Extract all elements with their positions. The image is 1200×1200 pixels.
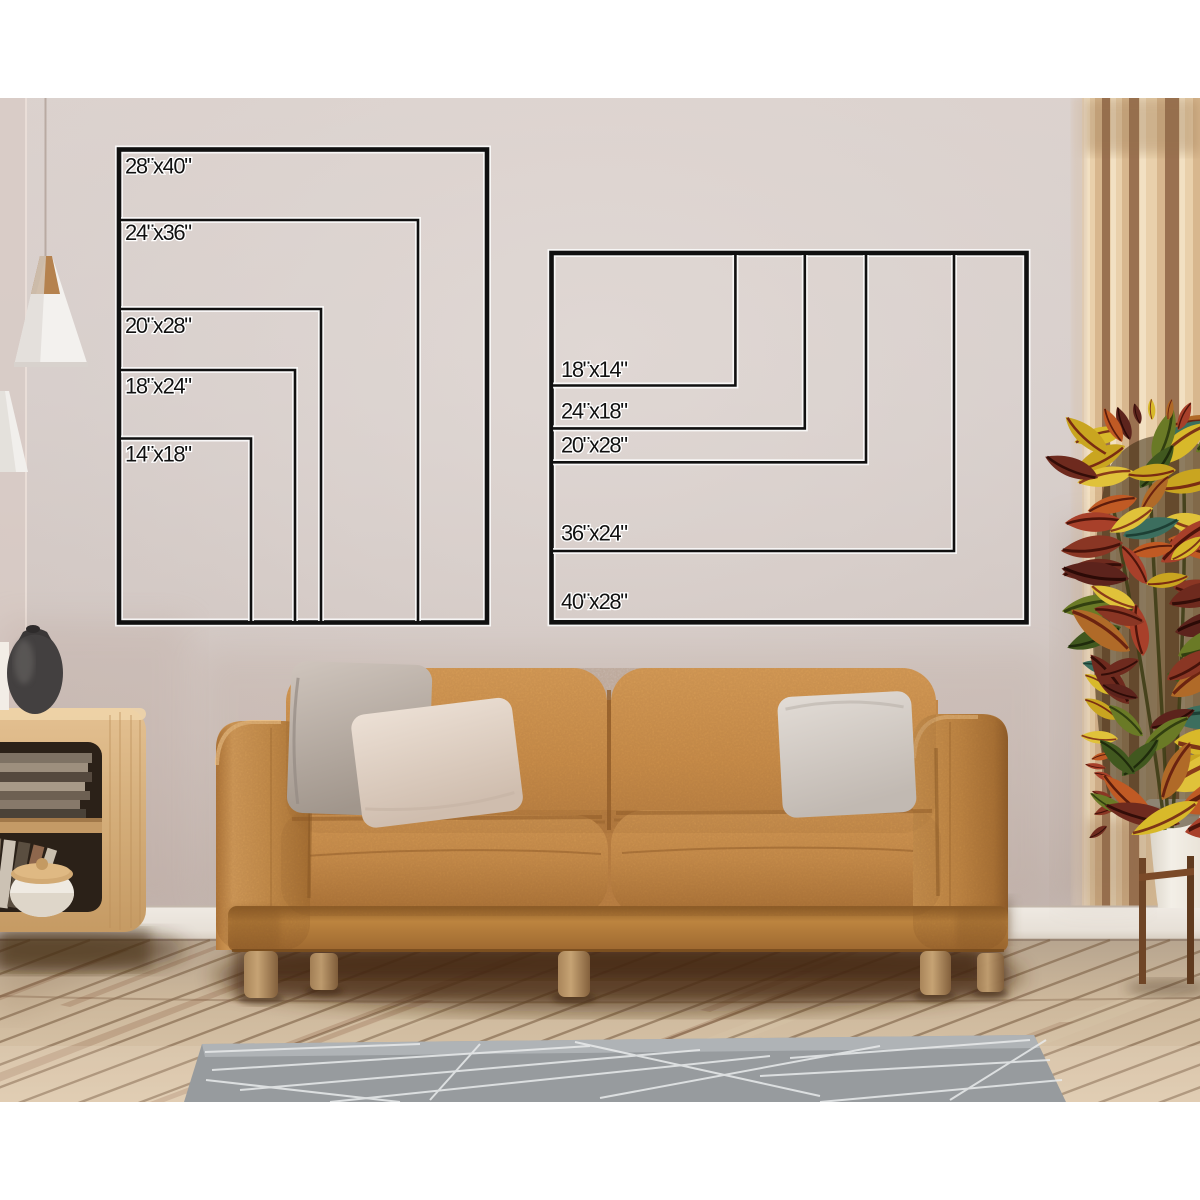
svg-text:24"x36": 24"x36" <box>125 220 192 245</box>
svg-text:18"x14": 18"x14" <box>561 357 628 382</box>
svg-text:36"x24": 36"x24" <box>561 520 628 545</box>
svg-text:40"x28": 40"x28" <box>561 589 628 614</box>
svg-text:18"x24": 18"x24" <box>125 374 192 399</box>
svg-text:20"x28": 20"x28" <box>125 313 192 338</box>
svg-text:20"x28": 20"x28" <box>561 433 628 458</box>
svg-text:28"x40": 28"x40" <box>125 154 192 179</box>
svg-text:14"x18": 14"x18" <box>125 442 192 467</box>
svg-text:24"x18": 24"x18" <box>561 399 628 424</box>
